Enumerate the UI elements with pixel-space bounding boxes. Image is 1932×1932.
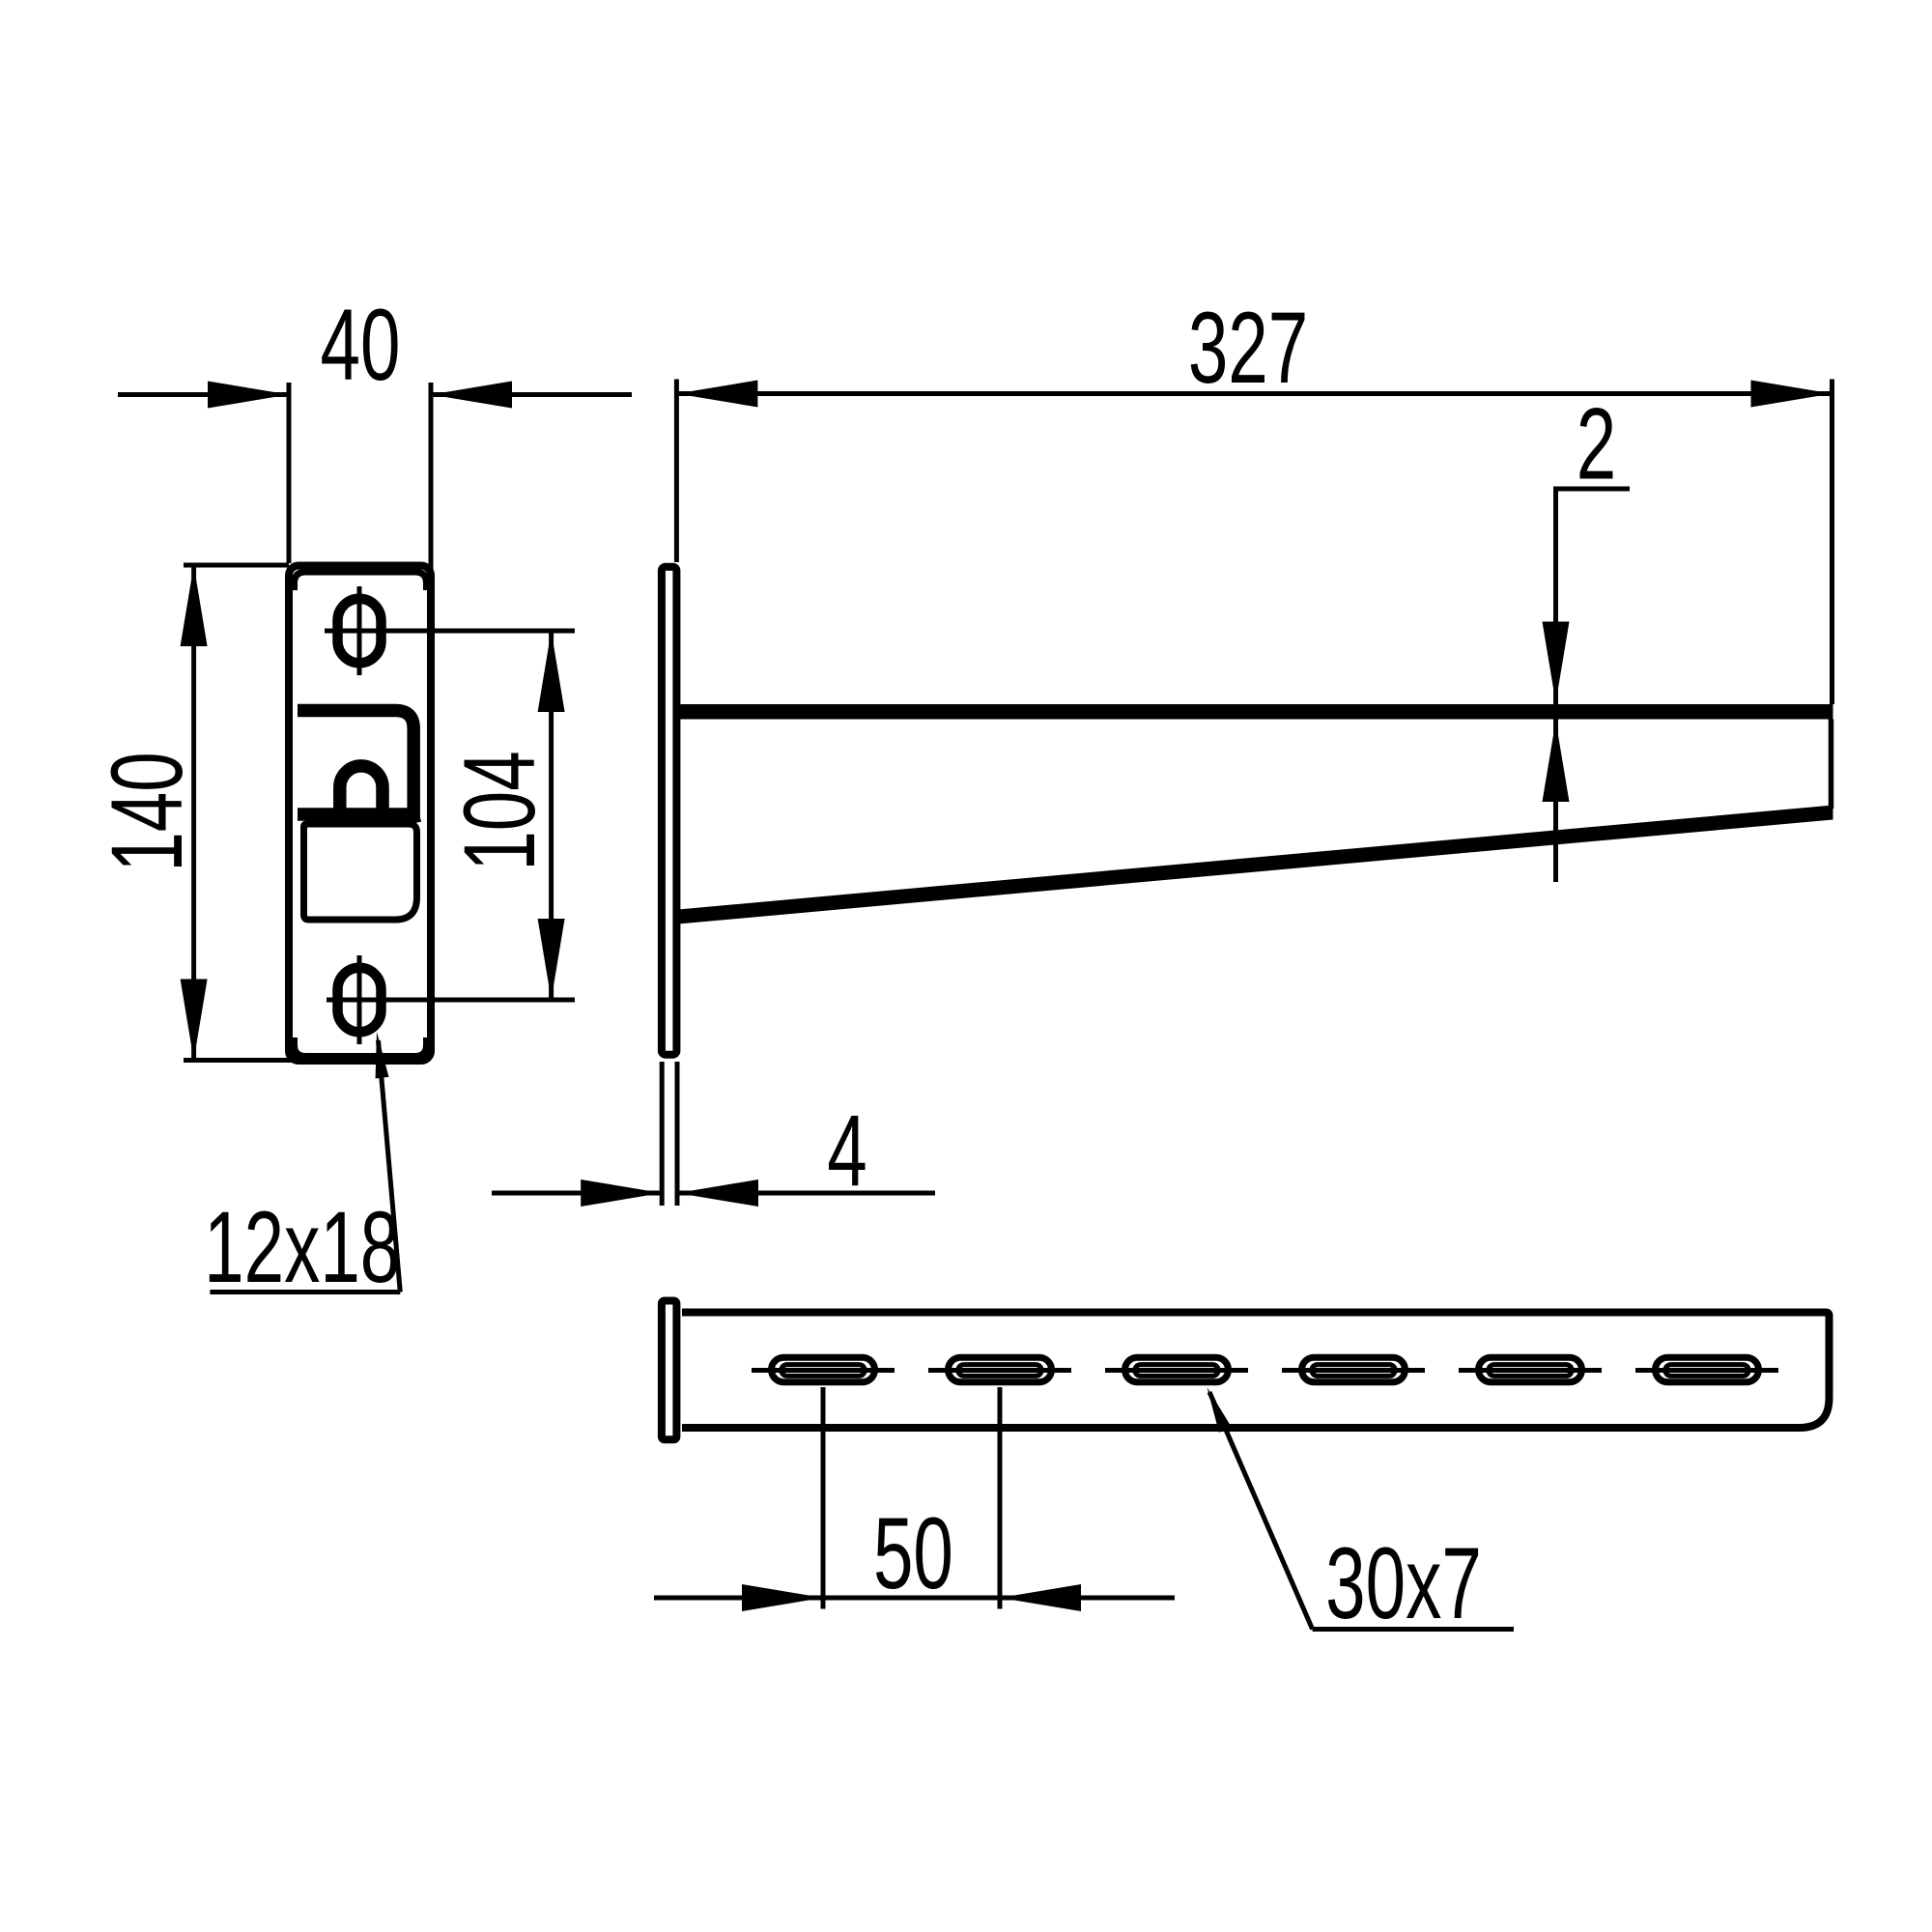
svg-text:40: 40 xyxy=(321,290,401,402)
svg-text:30x7: 30x7 xyxy=(1325,1528,1482,1640)
svg-text:2: 2 xyxy=(1577,388,1616,500)
svg-text:104: 104 xyxy=(444,751,556,870)
svg-text:327: 327 xyxy=(1188,293,1308,405)
svg-text:4: 4 xyxy=(827,1095,867,1207)
svg-text:12x18: 12x18 xyxy=(204,1192,400,1304)
svg-text:50: 50 xyxy=(873,1498,953,1610)
svg-text:140: 140 xyxy=(92,752,204,871)
